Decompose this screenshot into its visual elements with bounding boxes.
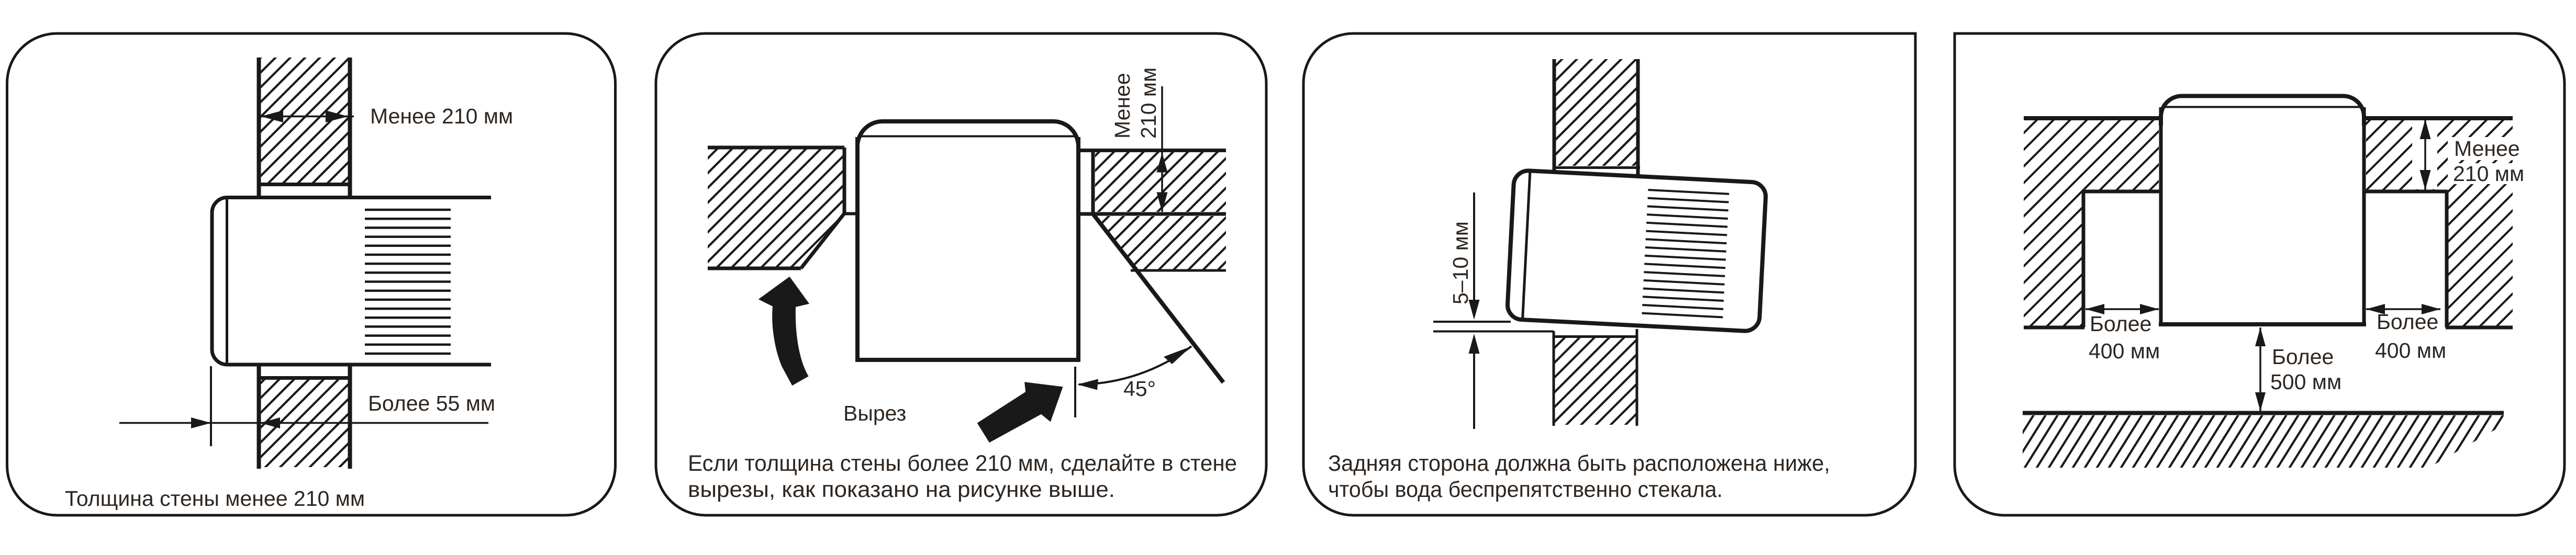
- svg-text:Задняя сторона должна быть рас: Задняя сторона должна быть расположена н…: [1328, 451, 1830, 476]
- svg-text:500 мм: 500 мм: [2270, 370, 2341, 394]
- svg-text:Менее: Менее: [2454, 137, 2520, 161]
- svg-text:210 мм: 210 мм: [2453, 162, 2524, 186]
- svg-text:Толщина стены менее 210 мм: Толщина стены менее 210 мм: [65, 486, 365, 511]
- svg-text:400 мм: 400 мм: [2375, 338, 2446, 363]
- svg-text:Более: Более: [2377, 310, 2438, 334]
- svg-text:400 мм: 400 мм: [2089, 339, 2160, 363]
- svg-text:Вырез: Вырез: [843, 401, 906, 425]
- svg-text:Более 55 мм: Более 55 мм: [368, 391, 495, 415]
- svg-text:210 мм: 210 мм: [1136, 67, 1161, 139]
- svg-text:Менее: Менее: [1110, 73, 1134, 139]
- svg-text:45°: 45°: [1123, 377, 1156, 401]
- svg-text:5–10 мм: 5–10 мм: [1448, 221, 1473, 304]
- svg-text:Если толщина стены более 210 м: Если толщина стены более 210 мм, сделайт…: [688, 451, 1237, 476]
- svg-text:чтобы вода беспрепятственно ст: чтобы вода беспрепятственно стекала.: [1328, 478, 1723, 502]
- svg-text:Более: Более: [2272, 345, 2334, 369]
- svg-text:Менее 210 мм: Менее 210 мм: [370, 104, 513, 128]
- svg-text:Более: Более: [2090, 312, 2151, 336]
- svg-text:вырезы, как показано на рисунк: вырезы, как показано на рисунке выше.: [688, 478, 1115, 502]
